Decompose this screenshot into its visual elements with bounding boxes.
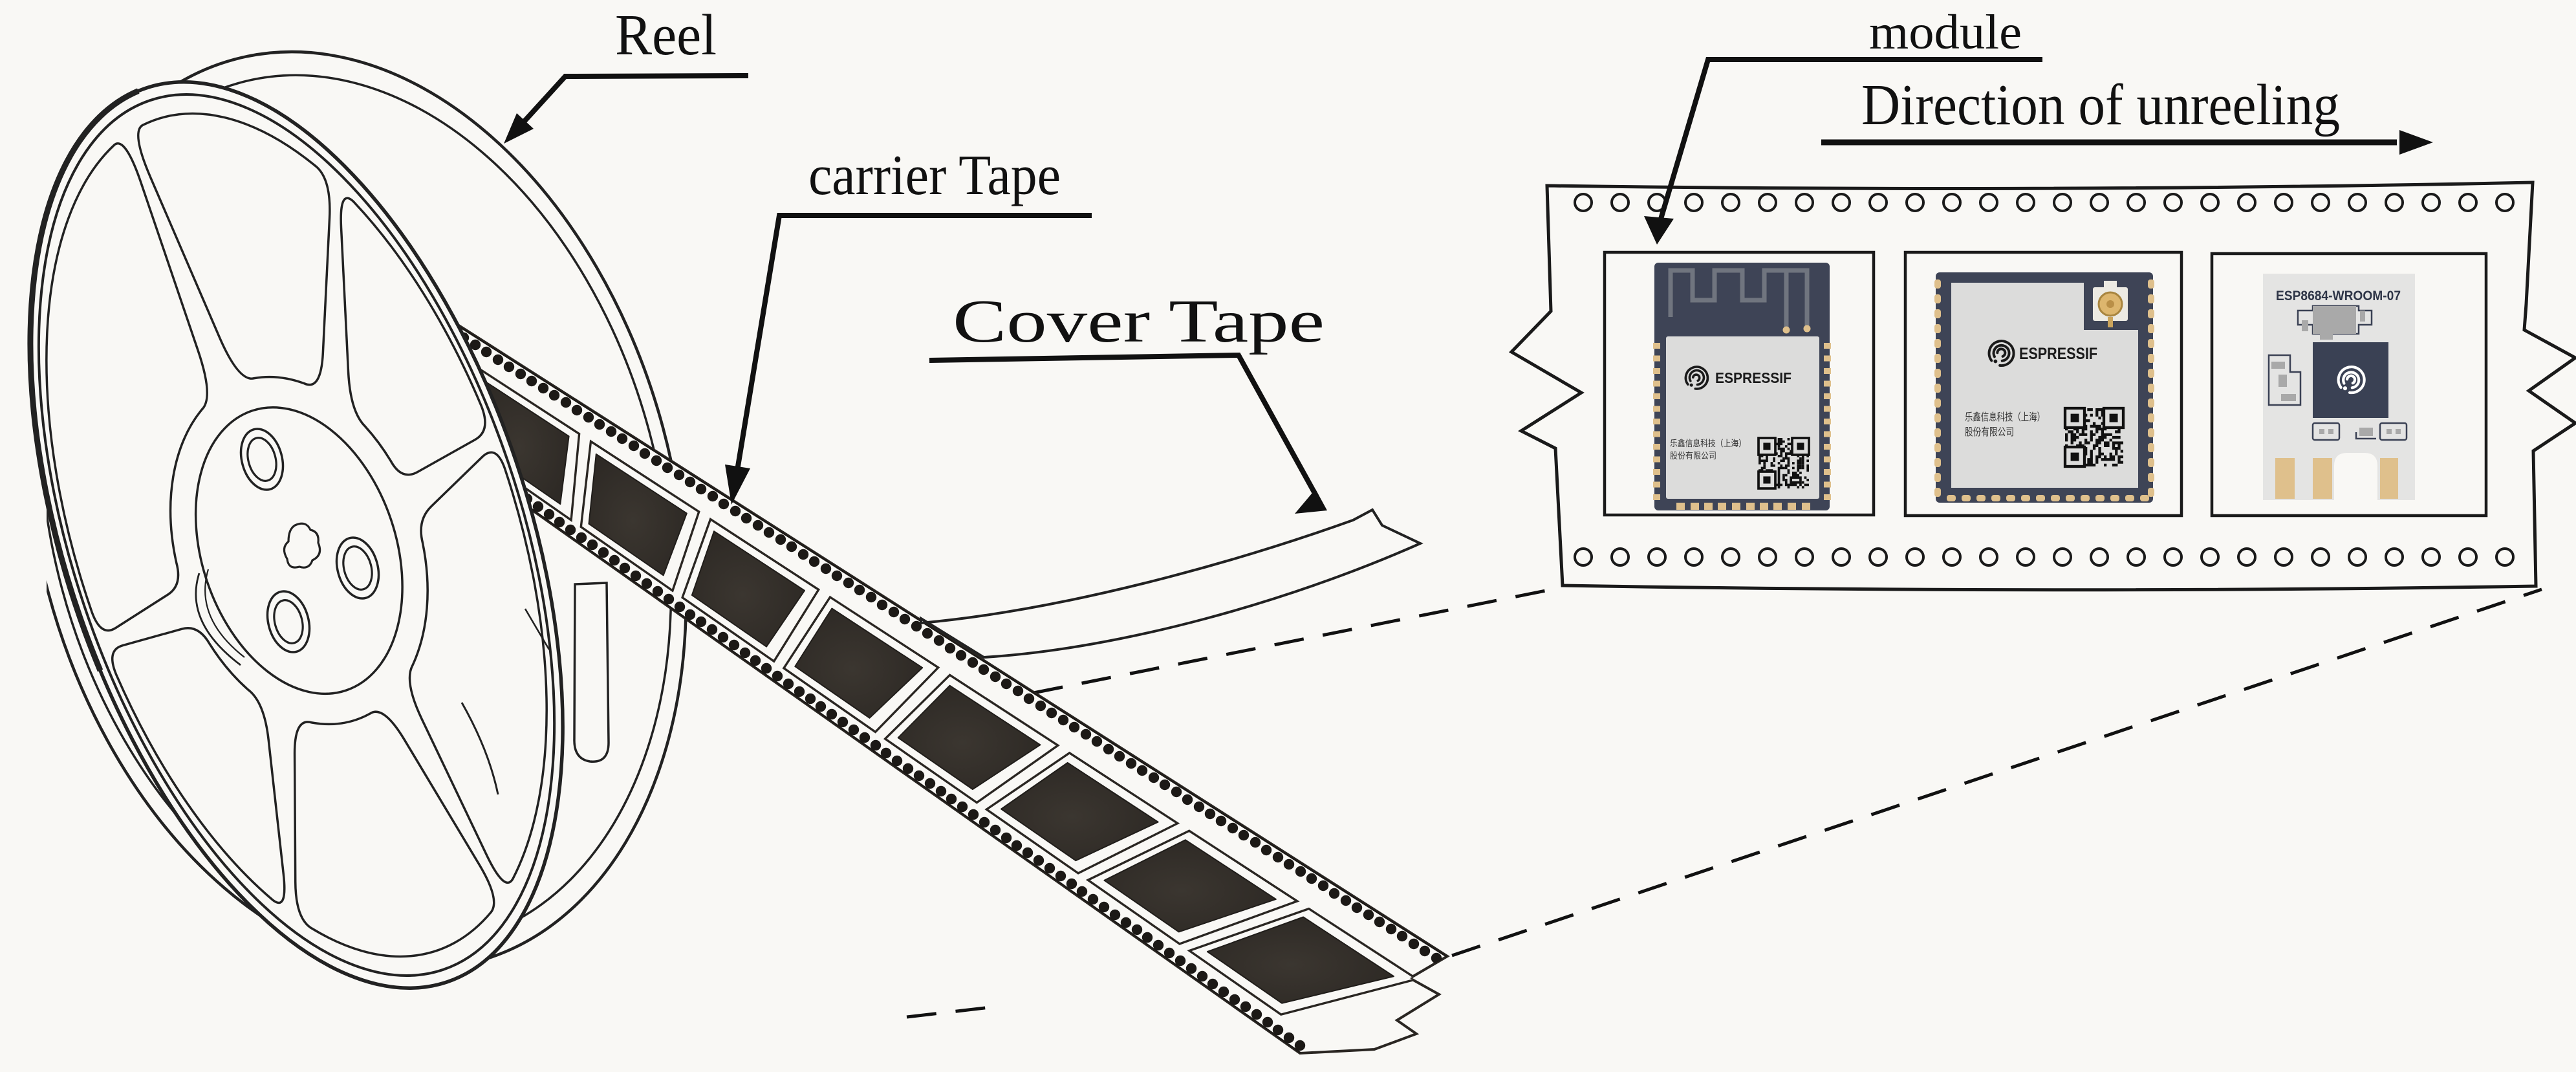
svg-text:Direction of unreeling: Direction of unreeling bbox=[1861, 73, 2340, 137]
svg-text:module: module bbox=[1869, 5, 2022, 60]
svg-text:乐鑫信息科技（上海）: 乐鑫信息科技（上海） bbox=[1965, 411, 2045, 423]
svg-text:股份有限公司: 股份有限公司 bbox=[1670, 451, 1716, 461]
svg-text:股份有限公司: 股份有限公司 bbox=[1965, 426, 2014, 438]
svg-text:ESPRESSIF: ESPRESSIF bbox=[1715, 369, 1791, 386]
svg-text:Cover Tape: Cover Tape bbox=[953, 288, 1325, 355]
svg-text:ESP8684-WROOM-07: ESP8684-WROOM-07 bbox=[2276, 289, 2401, 303]
svg-text:乐鑫信息科技（上海）: 乐鑫信息科技（上海） bbox=[1670, 438, 1746, 448]
svg-text:carrier Tape: carrier Tape bbox=[808, 144, 1061, 207]
svg-text:Reel: Reel bbox=[615, 3, 717, 67]
svg-text:ESPRESSIF: ESPRESSIF bbox=[2019, 345, 2097, 363]
